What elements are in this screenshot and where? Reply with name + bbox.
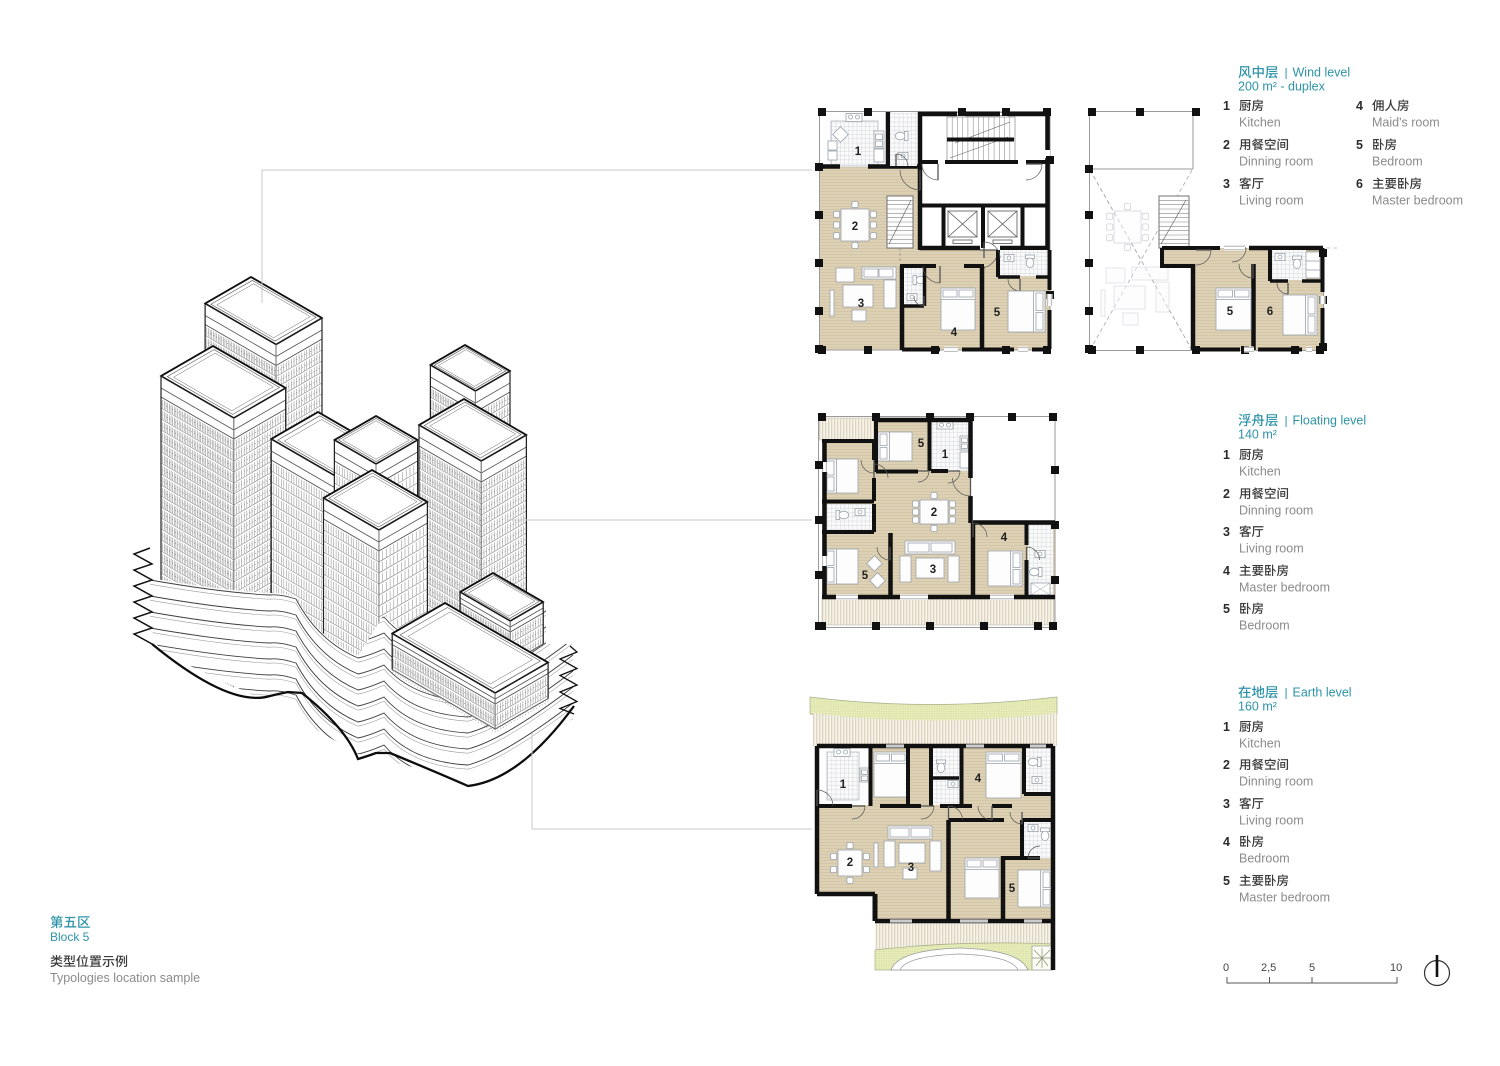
- svg-text:2: 2: [852, 221, 858, 233]
- svg-text:6: 6: [1267, 306, 1273, 318]
- svg-text:5: 5: [1309, 962, 1315, 974]
- svg-text:2: 2: [847, 857, 853, 869]
- svg-text:10: 10: [1390, 962, 1402, 974]
- svg-text:Wind level: Wind level: [1293, 66, 1351, 80]
- svg-text:3: 3: [908, 862, 914, 874]
- svg-text:Bedroom: Bedroom: [1372, 155, 1423, 169]
- svg-text:5: 5: [862, 570, 869, 582]
- svg-text:4: 4: [1001, 532, 1008, 544]
- svg-text:5: 5: [1227, 306, 1234, 318]
- svg-text:Master bedroom: Master bedroom: [1239, 891, 1330, 905]
- svg-text:Dinning room: Dinning room: [1239, 775, 1313, 789]
- svg-text:4: 4: [951, 327, 958, 339]
- svg-text:5: 5: [1223, 874, 1230, 888]
- svg-text:Living room: Living room: [1239, 194, 1304, 208]
- svg-text:Maid's room: Maid's room: [1372, 116, 1440, 130]
- svg-text:|: |: [1285, 686, 1288, 700]
- svg-text:Kitchen: Kitchen: [1239, 465, 1281, 479]
- svg-text:1: 1: [942, 449, 949, 461]
- svg-text:Living room: Living room: [1239, 542, 1304, 556]
- svg-text:2: 2: [1223, 138, 1230, 152]
- svg-text:Master bedroom: Master bedroom: [1239, 581, 1330, 595]
- svg-text:4: 4: [1356, 99, 1363, 113]
- svg-text:Master bedroom: Master bedroom: [1372, 194, 1463, 208]
- svg-text:1: 1: [1223, 448, 1230, 462]
- svg-text:160 m²: 160 m²: [1238, 700, 1277, 714]
- svg-text:3: 3: [1223, 177, 1230, 191]
- svg-text:Kitchen: Kitchen: [1239, 737, 1281, 751]
- svg-text:Block 5: Block 5: [50, 930, 90, 944]
- svg-text:200 m² - duplex: 200 m² - duplex: [1238, 80, 1326, 94]
- svg-text:1: 1: [1223, 99, 1230, 113]
- svg-text:4: 4: [1223, 835, 1230, 849]
- svg-text:Dinning room: Dinning room: [1239, 155, 1313, 169]
- svg-text:Living room: Living room: [1239, 814, 1304, 828]
- svg-text:3: 3: [1223, 525, 1230, 539]
- svg-text:5: 5: [1356, 138, 1363, 152]
- svg-text:Dinning room: Dinning room: [1239, 504, 1313, 518]
- svg-text:|: |: [1285, 66, 1288, 80]
- svg-text:3: 3: [858, 298, 864, 310]
- svg-text:6: 6: [1356, 177, 1363, 191]
- svg-text:140 m²: 140 m²: [1238, 428, 1277, 442]
- svg-text:4: 4: [1223, 564, 1230, 578]
- svg-text:5: 5: [1009, 883, 1016, 895]
- svg-text:5: 5: [918, 438, 925, 450]
- svg-text:2: 2: [931, 507, 937, 519]
- svg-text:|: |: [1285, 414, 1288, 428]
- svg-text:4: 4: [975, 773, 982, 785]
- svg-text:Bedroom: Bedroom: [1239, 852, 1290, 866]
- svg-text:Bedroom: Bedroom: [1239, 619, 1290, 633]
- svg-text:1: 1: [840, 779, 847, 791]
- svg-text:2: 2: [1223, 487, 1230, 501]
- svg-text:5: 5: [994, 307, 1001, 319]
- svg-text:Typologies location sample: Typologies location sample: [50, 971, 200, 985]
- svg-text:1: 1: [1223, 720, 1230, 734]
- svg-text:Kitchen: Kitchen: [1239, 116, 1281, 130]
- svg-text:Earth level: Earth level: [1293, 686, 1352, 700]
- svg-text:3: 3: [930, 564, 936, 576]
- svg-text:1: 1: [855, 146, 862, 158]
- svg-text:2,5: 2,5: [1261, 962, 1276, 974]
- svg-text:Floating level: Floating level: [1293, 414, 1367, 428]
- svg-text:0: 0: [1223, 962, 1229, 974]
- svg-text:5: 5: [1223, 602, 1230, 616]
- svg-text:3: 3: [1223, 797, 1230, 811]
- svg-text:2: 2: [1223, 758, 1230, 772]
